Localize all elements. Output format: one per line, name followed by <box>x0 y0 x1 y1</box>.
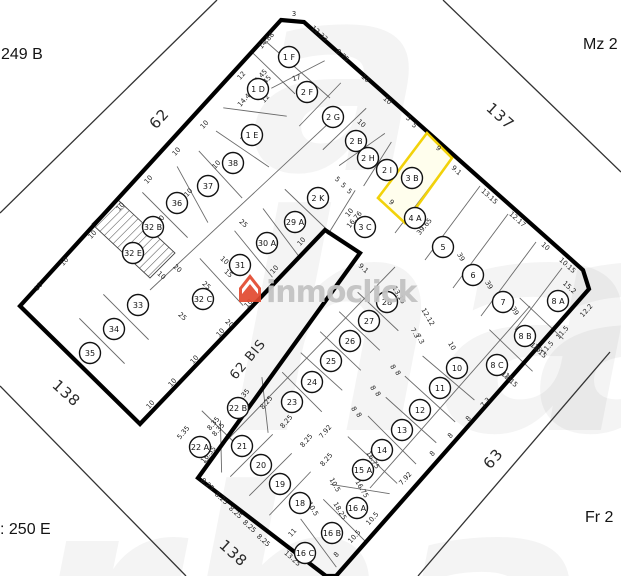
lot-number-12: 12 <box>415 406 425 415</box>
lot-number-2B: 2 B <box>349 137 362 146</box>
lot-marker-16C: 16 C <box>295 543 316 564</box>
lot-number-19: 19 <box>275 480 285 489</box>
lot-number-31: 31 <box>235 261 245 270</box>
lot-number-2K: 2 K <box>312 194 326 203</box>
lot-number-32E: 32 E <box>124 249 142 258</box>
lot-marker-4A: 4 A <box>405 208 426 229</box>
lot-number-4A: 4 A <box>408 214 422 223</box>
lot-number-27: 27 <box>364 317 374 326</box>
lot-marker-32E: 32 E <box>123 243 144 264</box>
lot-number-13: 13 <box>397 426 407 435</box>
lot-number-35: 35 <box>85 349 95 358</box>
lot-marker-32B: 32 B <box>143 217 164 238</box>
lot-marker-1D: 1 D <box>248 79 269 100</box>
lot-marker-11: 11 <box>430 378 451 399</box>
dimension-label: 10 <box>59 256 71 268</box>
dimension-label: 10 <box>211 159 223 171</box>
lot-marker-33: 33 <box>128 295 149 316</box>
lot-marker-21: 21 <box>232 436 253 457</box>
lot-marker-1E: 1 E <box>242 125 263 146</box>
inmoclick-watermark-logo: inmoclick <box>239 274 419 310</box>
lot-marker-23: 23 <box>282 392 303 413</box>
lot-number-22B: 22 B <box>229 404 247 413</box>
lot-marker-22B: 22 B <box>228 398 249 419</box>
lot-number-5: 5 <box>440 243 445 252</box>
lot-marker-8A: 8 A <box>548 291 569 312</box>
lot-number-25: 25 <box>326 357 336 366</box>
lot-marker-38: 38 <box>223 153 244 174</box>
lot-marker-2I: 2 I <box>377 160 398 181</box>
lot-number-8C: 8 C <box>490 361 504 370</box>
lot-number-14: 14 <box>377 446 387 455</box>
lot-number-32B: 32 B <box>144 223 162 232</box>
corner-label-top-right: Mz 2 <box>583 36 618 54</box>
lot-number-1F: 1 F <box>283 53 296 62</box>
lot-number-36: 36 <box>172 199 182 208</box>
lot-number-2G: 2 G <box>326 113 340 122</box>
lot-number-10: 10 <box>452 364 462 373</box>
lot-marker-12: 12 <box>410 400 431 421</box>
lot-number-33: 33 <box>133 301 143 310</box>
lot-number-8B: 8 B <box>518 332 531 341</box>
corner-label-top-left: 249 B <box>1 46 43 64</box>
dimension-label: 12 <box>236 70 248 82</box>
lot-marker-26: 26 <box>340 331 361 352</box>
lot-number-18: 18 <box>295 499 305 508</box>
lot-number-16A: 16 A <box>348 504 367 513</box>
corner-label-bottom-left: : 250 E <box>0 521 51 539</box>
corner-label-bottom-right: Fr 2 <box>585 509 613 527</box>
plat-map-image: ahaarha312.338.7510105599.113.1512.17101… <box>0 0 621 576</box>
lot-marker-22A: 22 A <box>190 437 211 458</box>
street-label-137: 137 <box>483 99 519 134</box>
lot-number-24: 24 <box>307 378 317 387</box>
lot-number-32C: 32 C <box>194 295 213 304</box>
lot-marker-16A: 16 A <box>347 498 368 519</box>
lot-number-21: 21 <box>237 442 247 451</box>
lot-number-22A: 22 A <box>191 443 210 452</box>
lot-number-37: 37 <box>203 182 213 191</box>
lot-marker-29A: 29 A <box>285 212 306 233</box>
lot-marker-18: 18 <box>290 493 311 514</box>
lot-marker-30A: 30 A <box>257 233 278 254</box>
lot-number-29A: 29 A <box>286 218 305 227</box>
lot-number-6: 6 <box>470 271 475 280</box>
lot-marker-2F: 2 F <box>297 82 318 103</box>
lot-number-1D: 1 D <box>251 85 265 94</box>
lot-number-3B: 3 B <box>405 174 418 183</box>
dimension-label: 10 <box>143 174 155 186</box>
lot-marker-16B: 16 B <box>322 523 343 544</box>
lot-marker-3C: 3 C <box>355 217 376 238</box>
lot-marker-2H: 2 H <box>358 148 379 169</box>
lot-marker-24: 24 <box>302 372 323 393</box>
lot-marker-2K: 2 K <box>308 188 329 209</box>
lot-number-1E: 1 E <box>246 131 259 140</box>
lot-number-38: 38 <box>228 159 238 168</box>
lot-number-3C: 3 C <box>358 223 372 232</box>
dimension-label: 10 <box>171 146 183 158</box>
lot-marker-6: 6 <box>463 265 484 286</box>
street-label-138: 138 <box>49 376 85 411</box>
lot-marker-8B: 8 B <box>515 326 536 347</box>
street-label-62: 62 <box>146 105 173 133</box>
lot-number-16B: 16 B <box>323 529 341 538</box>
lot-marker-35: 35 <box>80 343 101 364</box>
lot-number-2F: 2 F <box>301 88 314 97</box>
lot-marker-36: 36 <box>167 193 188 214</box>
lot-marker-8C: 8 C <box>487 355 508 376</box>
lot-number-23: 23 <box>287 398 297 407</box>
lot-marker-31: 31 <box>230 255 251 276</box>
lot-marker-7: 7 <box>493 292 514 313</box>
dimension-label: 20 <box>171 263 183 275</box>
lot-marker-15A: 15 A <box>353 460 374 481</box>
lot-marker-3B: 3 B <box>402 168 423 189</box>
lot-marker-14: 14 <box>372 440 393 461</box>
lot-number-26: 26 <box>345 337 355 346</box>
lot-marker-25: 25 <box>321 351 342 372</box>
lot-marker-20: 20 <box>251 455 272 476</box>
lot-marker-34: 34 <box>104 319 125 340</box>
lot-marker-10: 10 <box>447 358 468 379</box>
lot-marker-19: 19 <box>270 474 291 495</box>
lot-number-8A: 8 A <box>551 297 565 306</box>
lot-number-15A: 15 A <box>354 466 373 475</box>
lot-marker-32C: 32 C <box>193 289 214 310</box>
lot-number-34: 34 <box>109 325 119 334</box>
lot-number-2H: 2 H <box>361 154 375 163</box>
lot-number-7: 7 <box>500 298 505 307</box>
dimension-label: 3 <box>292 10 296 18</box>
lot-number-30A: 30 A <box>258 239 277 248</box>
lot-number-16C: 16 C <box>296 549 315 558</box>
dimension-label: 25 <box>176 311 188 323</box>
lot-number-2I: 2 I <box>382 166 392 175</box>
lot-number-20: 20 <box>256 461 266 470</box>
inmoclick-logo-text: inmoclick <box>266 275 419 310</box>
lot-marker-2G: 2 G <box>323 107 344 128</box>
dimension-label: 10 <box>199 119 211 131</box>
lot-marker-5: 5 <box>433 237 454 258</box>
plat-map-svg: ahaarha312.338.7510105599.113.1512.17101… <box>0 0 621 576</box>
lot-marker-13: 13 <box>392 420 413 441</box>
lot-marker-27: 27 <box>359 311 380 332</box>
lot-number-11: 11 <box>435 384 445 393</box>
lot-marker-1F: 1 F <box>279 47 300 68</box>
lot-marker-37: 37 <box>198 176 219 197</box>
